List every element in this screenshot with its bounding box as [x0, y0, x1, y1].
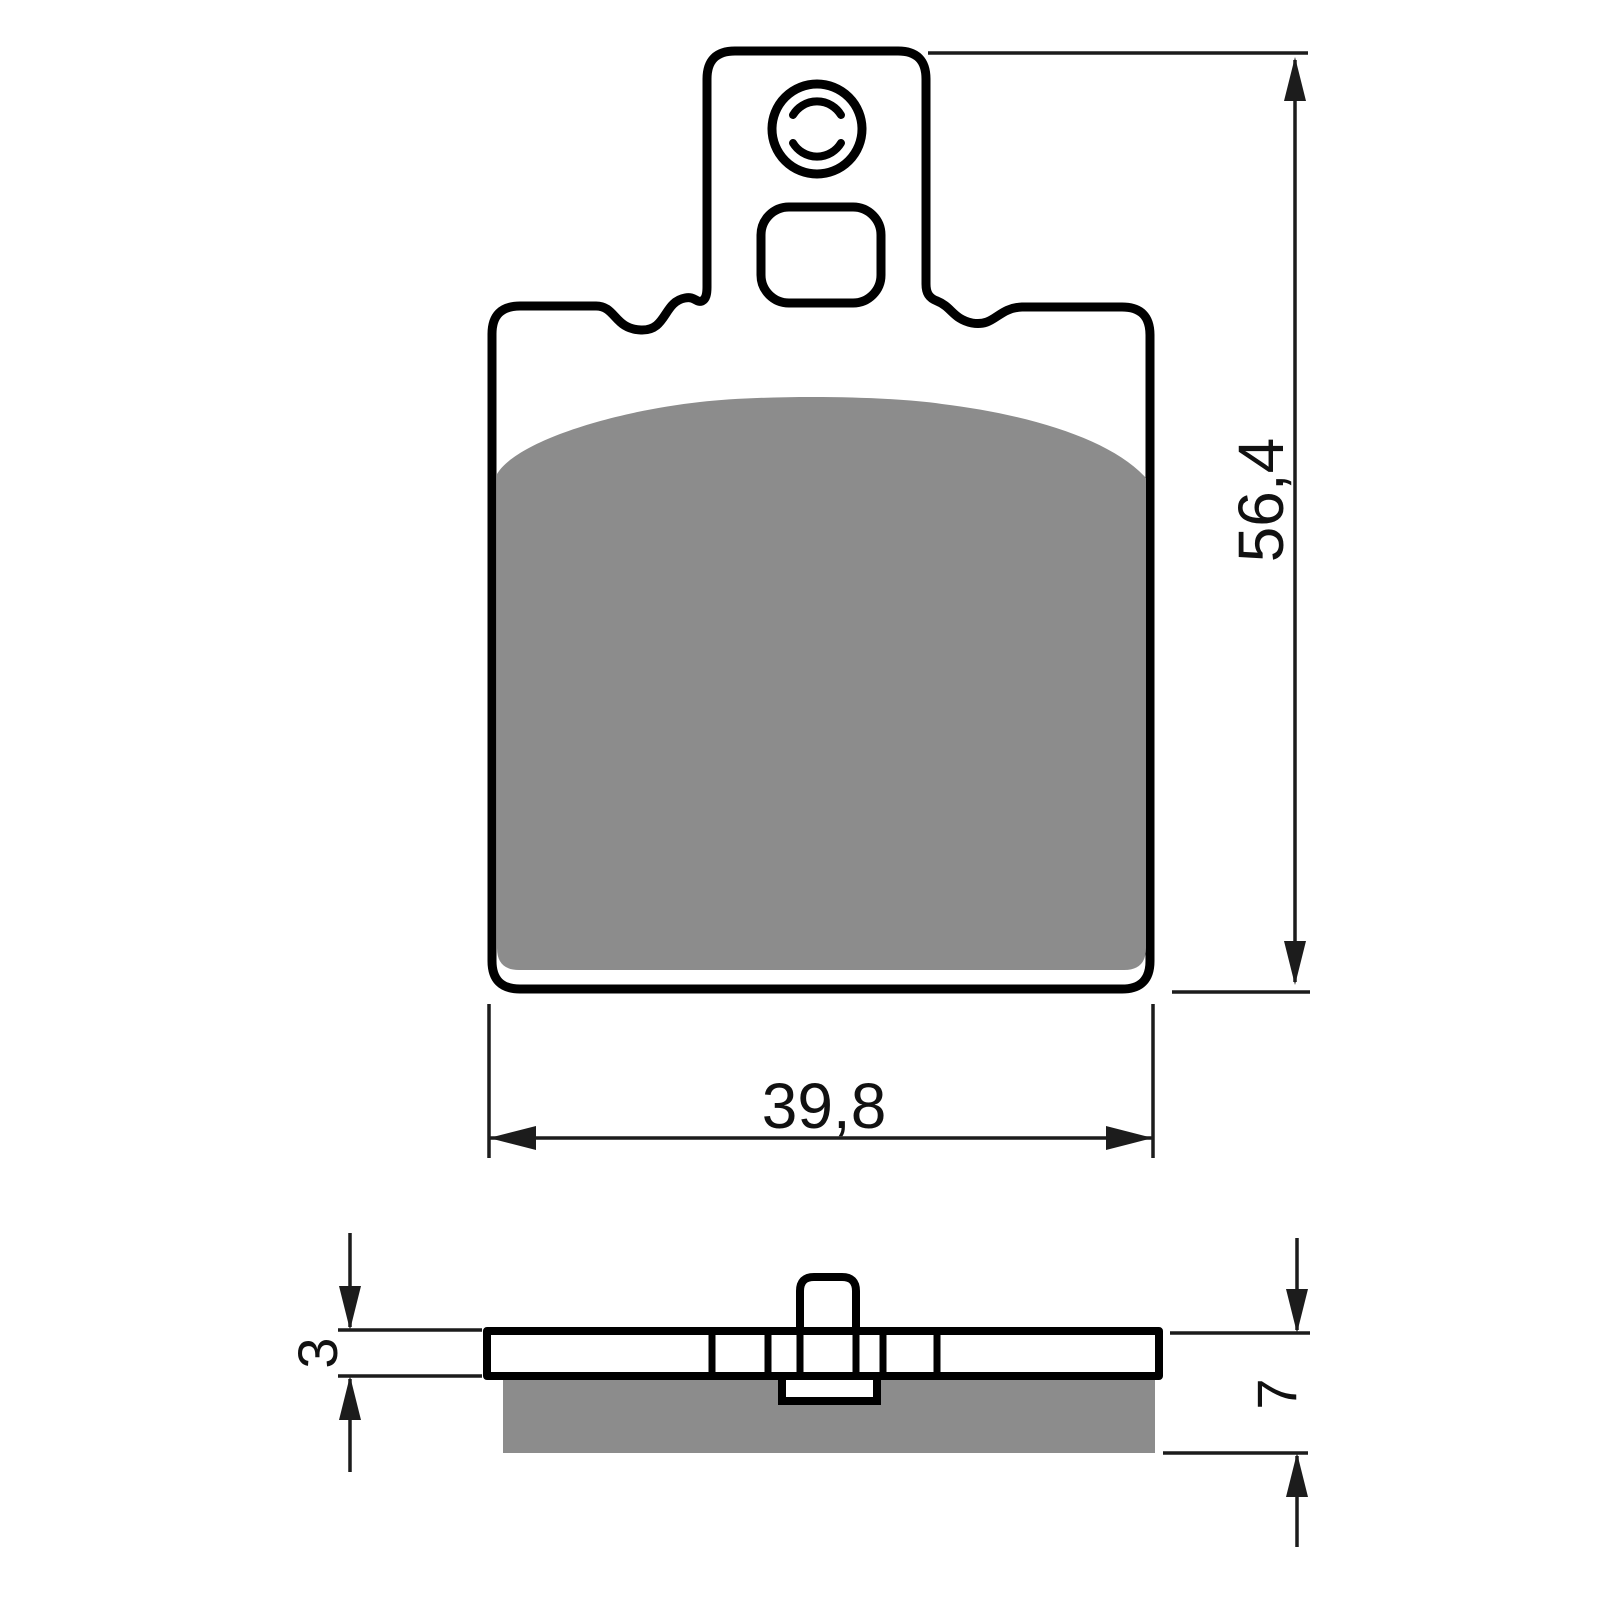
- arrowhead-right: [1106, 1126, 1153, 1150]
- dimension-label-plate-thickness: 3: [286, 1337, 349, 1368]
- dimension-label-total-thickness: 7: [1245, 1378, 1308, 1409]
- friction-material-front: [497, 397, 1146, 970]
- dimension-plate-thickness: 3: [286, 1233, 482, 1472]
- dimension-label-height: 56,4: [1225, 438, 1297, 563]
- arrowhead-down: [1286, 1289, 1308, 1333]
- front-view: [492, 51, 1150, 989]
- backing-plate-side: [487, 1331, 1159, 1376]
- pin-tab-side: [800, 1277, 856, 1333]
- arrowhead-up: [1286, 1453, 1308, 1497]
- arrowhead-down: [1284, 941, 1306, 985]
- brake-pad-technical-drawing: 56,4 39,8 3 7: [0, 0, 1600, 1600]
- dimension-width: 39,8: [489, 1004, 1153, 1158]
- arrowhead-up: [339, 1376, 361, 1420]
- arrowhead-up: [1284, 57, 1306, 101]
- arrowhead-down: [339, 1286, 361, 1330]
- drawing-canvas: 56,4 39,8 3 7: [0, 0, 1600, 1600]
- dimension-total-thickness: 7: [1163, 1238, 1310, 1547]
- arrowhead-left: [489, 1126, 536, 1150]
- square-hole: [761, 207, 881, 303]
- dimension-label-width: 39,8: [762, 1070, 887, 1142]
- side-view: [487, 1277, 1159, 1453]
